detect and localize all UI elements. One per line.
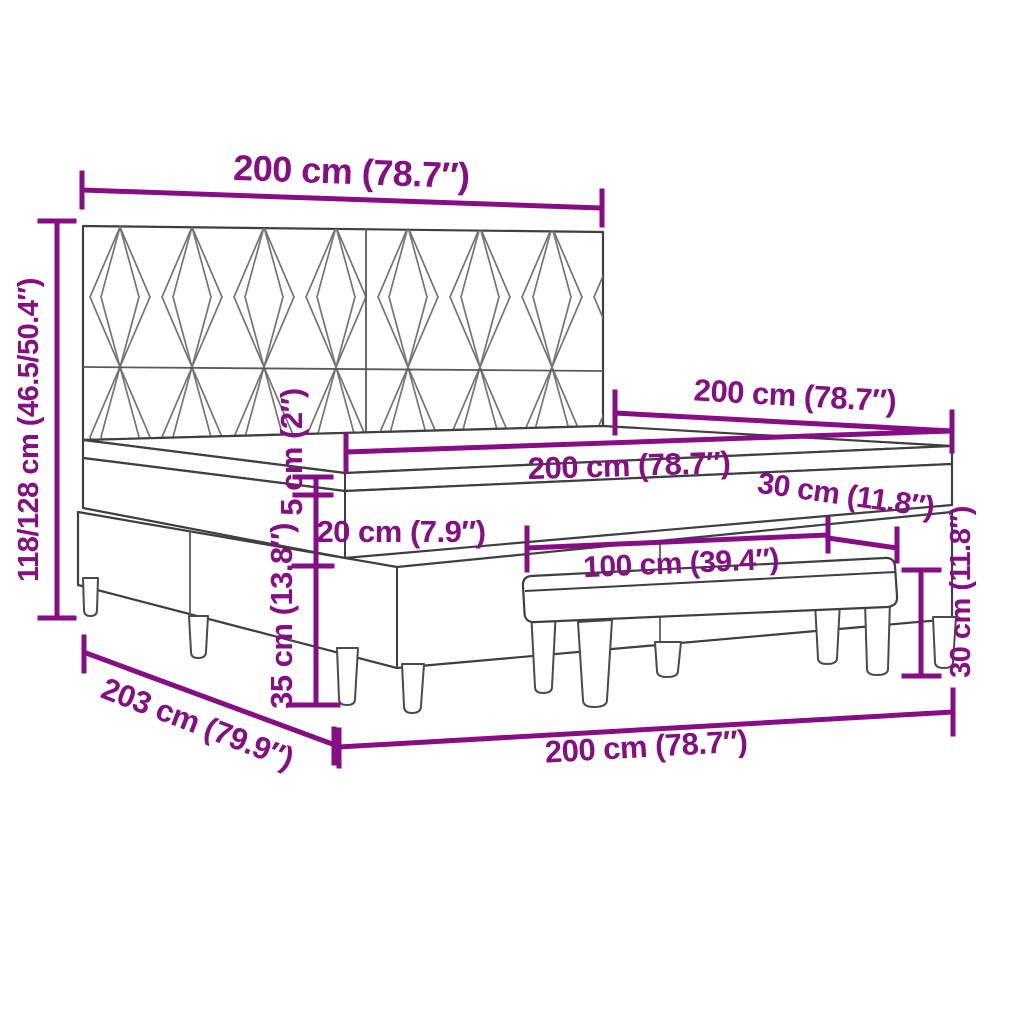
bed-leg bbox=[655, 642, 681, 677]
bed-dimension-diagram: 200 cm (78.7″) 118/128 cm (46.5/50.4″) 2… bbox=[0, 0, 1024, 1024]
bed-drawing bbox=[78, 226, 956, 713]
dim-label-total-height: 118/128 cm (46.5/50.4″) bbox=[13, 278, 45, 582]
headboard-diamond-pattern bbox=[83, 226, 603, 442]
bench-leg bbox=[865, 601, 890, 675]
dim-label-bench-height: 30 cm (11.8″) bbox=[945, 506, 977, 678]
dim-label-bed-width-bottom: 200 cm (78.7″) bbox=[544, 723, 748, 769]
dim-label-mattress-width: 200 cm (78.7″) bbox=[527, 445, 731, 486]
diagram-canvas: 200 cm (78.7″) 118/128 cm (46.5/50.4″) 2… bbox=[0, 0, 1024, 1024]
dim-label-topper-height: 5 cm (2″) bbox=[274, 388, 309, 516]
bed-leg bbox=[83, 578, 98, 616]
bench-leg bbox=[578, 620, 612, 707]
headboard bbox=[83, 226, 603, 442]
bed-leg bbox=[337, 648, 358, 705]
dim-total-height bbox=[40, 221, 74, 618]
bed-leg bbox=[189, 616, 208, 658]
bench-leg bbox=[815, 602, 840, 664]
dim-label-headboard-width: 200 cm (78.7″) bbox=[233, 147, 471, 196]
bed-leg bbox=[402, 664, 424, 713]
dim-label-bed-length: 200 cm (78.7″) bbox=[693, 372, 897, 418]
dim-label-base-height: 35 cm (13.8″) bbox=[264, 523, 299, 709]
dim-label-mattress-height: 20 cm (7.9″) bbox=[316, 514, 485, 549]
